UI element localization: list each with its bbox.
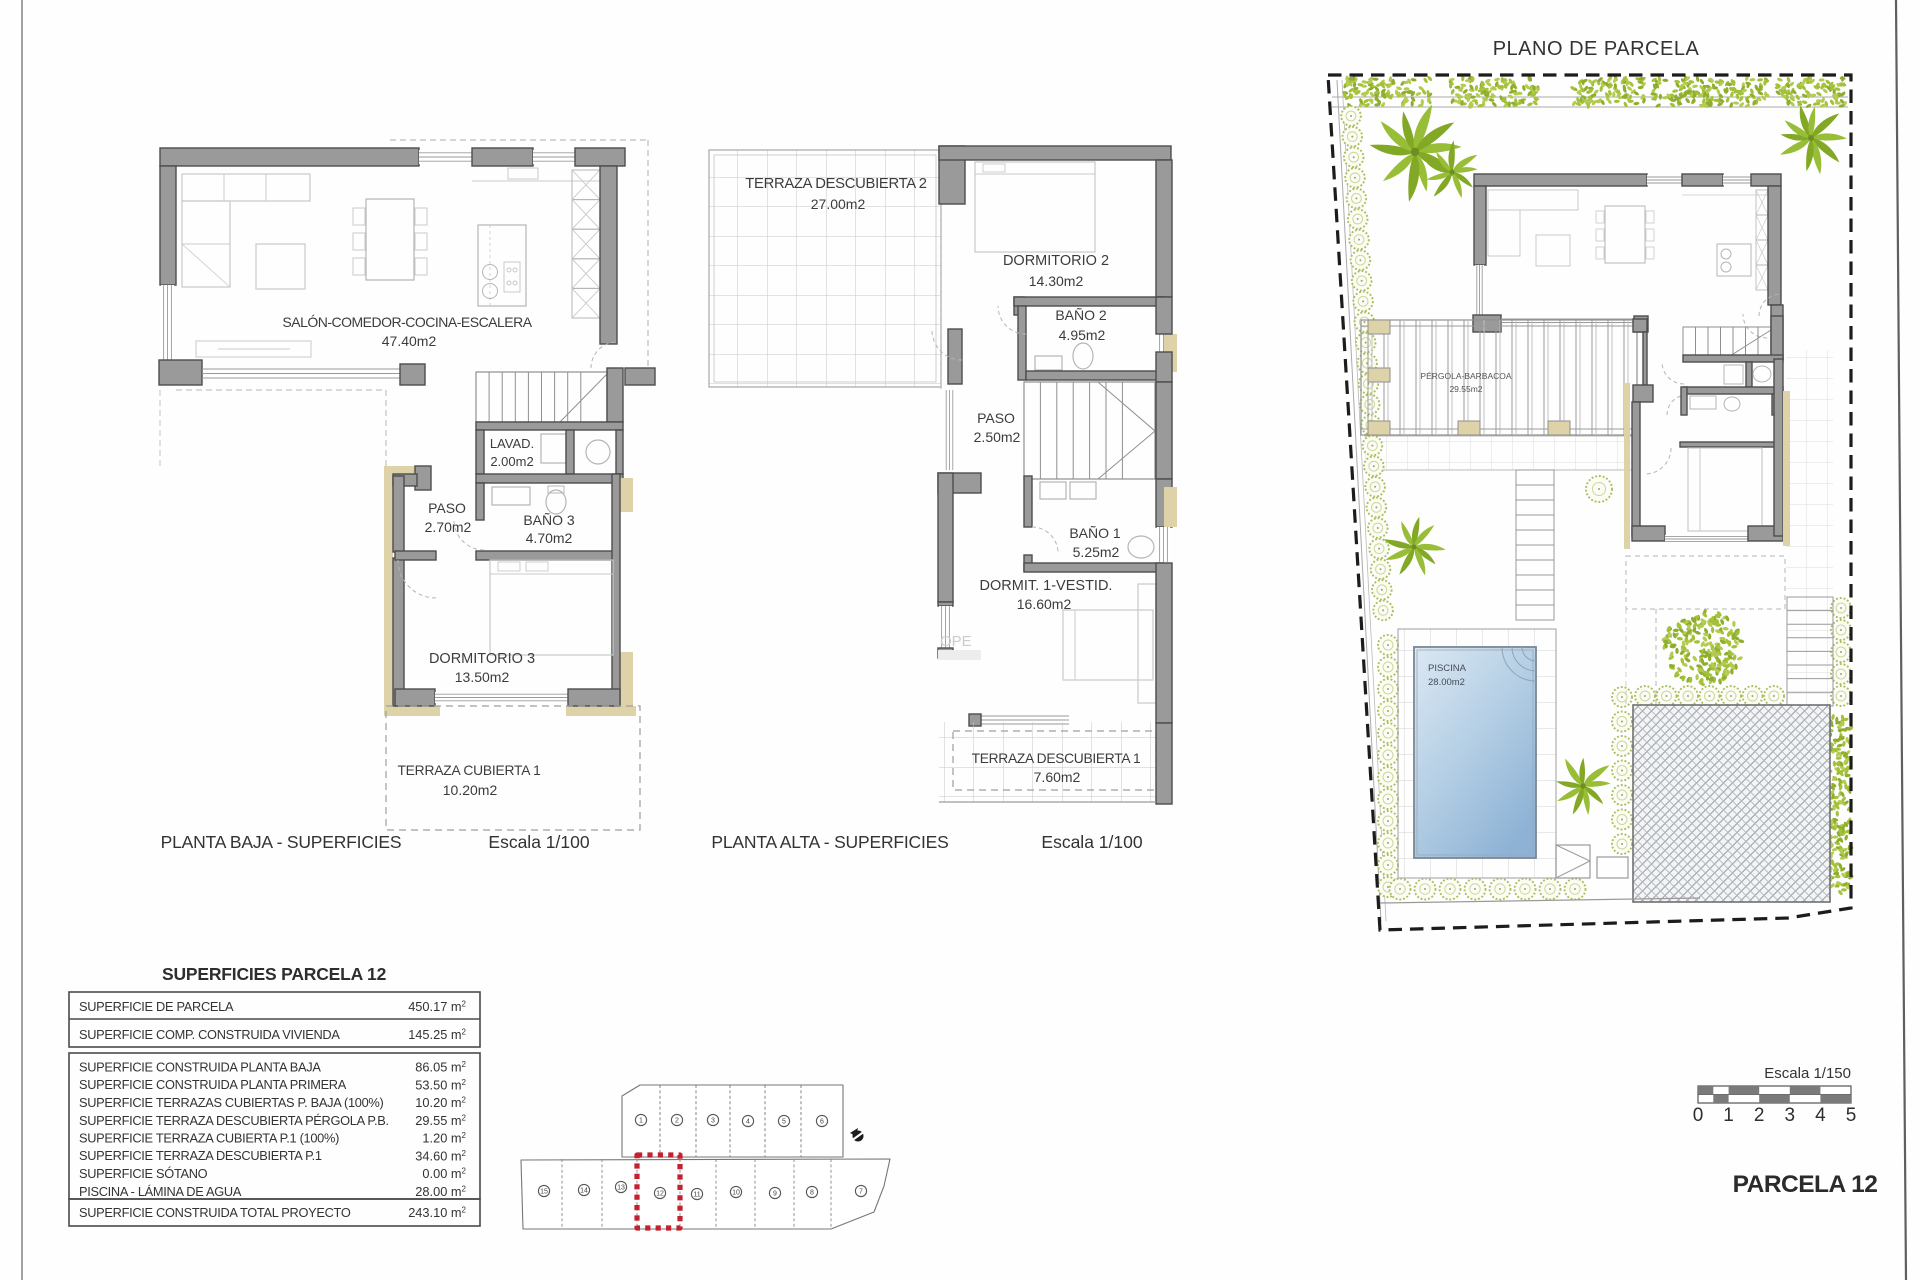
svg-text:SUPERFICIE TERRAZAS CUBIERTAS: SUPERFICIE TERRAZAS CUBIERTAS P. BAJA (1…	[79, 1095, 383, 1110]
svg-text:1: 1	[1723, 1105, 1734, 1126]
svg-text:Escala 1/150: Escala 1/150	[1764, 1065, 1851, 1082]
svg-text:OPE: OPE	[940, 633, 972, 650]
svg-text:Escala 1/100: Escala 1/100	[488, 832, 589, 852]
svg-text:SUPERFICIE CONSTRUIDA PLANTA B: SUPERFICIE CONSTRUIDA PLANTA BAJA	[79, 1060, 321, 1075]
svg-text:10.20m2: 10.20m2	[443, 782, 498, 798]
svg-text:SUPERFICIE TERRAZA DESCUBIERTA: SUPERFICIE TERRAZA DESCUBIERTA PÉRGOLA P…	[79, 1113, 389, 1128]
svg-text:11: 11	[693, 1191, 700, 1198]
svg-text:10.20 m2: 10.20 m2	[415, 1095, 466, 1110]
svg-text:DORMITORIO 2: DORMITORIO 2	[1003, 253, 1109, 269]
svg-text:PISCINA - LÁMINA DE AGUA: PISCINA - LÁMINA DE AGUA	[79, 1184, 242, 1199]
svg-text:SUPERFICIE TERRAZA CUBIERTA P.: SUPERFICIE TERRAZA CUBIERTA P.1 (100%)	[79, 1131, 339, 1146]
svg-text:SUPERFICIE COMP. CONSTRUIDA VI: SUPERFICIE COMP. CONSTRUIDA VIVIENDA	[79, 1027, 340, 1042]
svg-text:4: 4	[1815, 1105, 1826, 1126]
svg-text:DORMITORIO 3: DORMITORIO 3	[429, 651, 535, 667]
svg-text:SUPERFICIE TERRAZA DESCUBIERTA: SUPERFICIE TERRAZA DESCUBIERTA P.1	[79, 1148, 322, 1163]
svg-text:7: 7	[859, 1188, 863, 1195]
svg-text:PARCELA 12: PARCELA 12	[1733, 1171, 1878, 1198]
svg-text:5: 5	[782, 1118, 786, 1125]
svg-text:14: 14	[580, 1187, 588, 1194]
svg-text:86.05 m2: 86.05 m2	[415, 1060, 466, 1075]
svg-text:2: 2	[1754, 1105, 1765, 1126]
svg-text:145.25 m2: 145.25 m2	[408, 1027, 466, 1042]
svg-text:1.20 m2: 1.20 m2	[422, 1131, 466, 1146]
svg-text:5.25m2: 5.25m2	[1073, 544, 1120, 560]
svg-text:SUPERFICIE CONSTRUIDA TOTAL PR: SUPERFICIE CONSTRUIDA TOTAL PROYECTO	[79, 1205, 351, 1220]
svg-text:DORMIT. 1-VESTID.: DORMIT. 1-VESTID.	[980, 578, 1113, 594]
svg-text:0: 0	[1693, 1105, 1704, 1126]
svg-text:0.00 m2: 0.00 m2	[422, 1166, 466, 1181]
svg-text:13: 13	[617, 1184, 625, 1191]
svg-text:28.00 m2: 28.00 m2	[415, 1184, 466, 1199]
svg-text:6: 6	[820, 1118, 824, 1125]
svg-text:13.50m2: 13.50m2	[455, 669, 510, 685]
svg-text:PLANO DE PARCELA: PLANO DE PARCELA	[1493, 38, 1700, 60]
svg-text:BAÑO 3: BAÑO 3	[523, 512, 575, 528]
svg-text:29.55m2: 29.55m2	[1449, 384, 1482, 394]
svg-text:LAVAD.: LAVAD.	[490, 436, 534, 451]
svg-text:SUPERFICIE CONSTRUIDA PLANTA P: SUPERFICIE CONSTRUIDA PLANTA PRIMERA	[79, 1077, 347, 1092]
svg-text:53.50 m2: 53.50 m2	[415, 1077, 466, 1092]
svg-text:2.70m2: 2.70m2	[425, 519, 472, 535]
svg-text:SUPERFICIES PARCELA 12: SUPERFICIES PARCELA 12	[162, 964, 387, 984]
svg-text:BAÑO 2: BAÑO 2	[1055, 307, 1107, 323]
svg-text:29.55 m2: 29.55 m2	[415, 1113, 466, 1128]
svg-text:2: 2	[675, 1117, 679, 1124]
svg-text:3: 3	[1785, 1105, 1796, 1126]
svg-text:TERRAZA DESCUBIERTA 1: TERRAZA DESCUBIERTA 1	[972, 751, 1141, 766]
svg-text:5: 5	[1846, 1105, 1857, 1126]
svg-text:28.00m2: 28.00m2	[1428, 677, 1465, 688]
svg-text:4.70m2: 4.70m2	[526, 530, 573, 546]
svg-text:Escala 1/100: Escala 1/100	[1041, 832, 1142, 852]
svg-text:TERRAZA CUBIERTA 1: TERRAZA CUBIERTA 1	[397, 763, 540, 778]
svg-text:PISCINA: PISCINA	[1428, 663, 1467, 674]
svg-text:9: 9	[773, 1190, 777, 1197]
svg-text:PLANTA ALTA - SUPERFICIES: PLANTA ALTA - SUPERFICIES	[711, 832, 948, 852]
svg-text:2.50m2: 2.50m2	[974, 429, 1021, 445]
svg-text:PLANTA BAJA - SUPERFICIES: PLANTA BAJA - SUPERFICIES	[161, 832, 402, 852]
svg-text:15: 15	[540, 1188, 548, 1195]
svg-text:450.17 m2: 450.17 m2	[408, 999, 466, 1014]
svg-text:14.30m2: 14.30m2	[1029, 273, 1084, 289]
svg-text:47.40m2: 47.40m2	[382, 333, 437, 349]
svg-text:BAÑO 1: BAÑO 1	[1069, 525, 1121, 541]
svg-text:8: 8	[810, 1189, 814, 1196]
svg-text:7.60m2: 7.60m2	[1034, 769, 1081, 785]
svg-text:PASO: PASO	[428, 500, 466, 516]
svg-text:4: 4	[746, 1118, 750, 1125]
svg-text:34.60 m2: 34.60 m2	[415, 1148, 466, 1163]
svg-text:12: 12	[656, 1190, 664, 1197]
svg-text:3: 3	[711, 1117, 715, 1124]
svg-text:4.95m2: 4.95m2	[1059, 327, 1106, 343]
svg-text:PASO: PASO	[977, 410, 1015, 426]
svg-text:SUPERFICIE SÓTANO: SUPERFICIE SÓTANO	[79, 1166, 208, 1181]
svg-text:10: 10	[732, 1189, 740, 1196]
svg-text:2.00m2: 2.00m2	[490, 454, 533, 469]
svg-text:1: 1	[639, 1117, 643, 1124]
svg-text:243.10 m2: 243.10 m2	[408, 1205, 466, 1220]
svg-text:SUPERFICIE DE PARCELA: SUPERFICIE DE PARCELA	[79, 999, 234, 1014]
svg-text:27.00m2: 27.00m2	[811, 196, 866, 212]
svg-text:PÉRGOLA-BARBACOA: PÉRGOLA-BARBACOA	[1420, 371, 1511, 381]
svg-text:TERRAZA DESCUBIERTA 2: TERRAZA DESCUBIERTA 2	[745, 176, 927, 192]
svg-text:SALÓN-COMEDOR-COCINA-ESCALERA: SALÓN-COMEDOR-COCINA-ESCALERA	[282, 314, 532, 330]
